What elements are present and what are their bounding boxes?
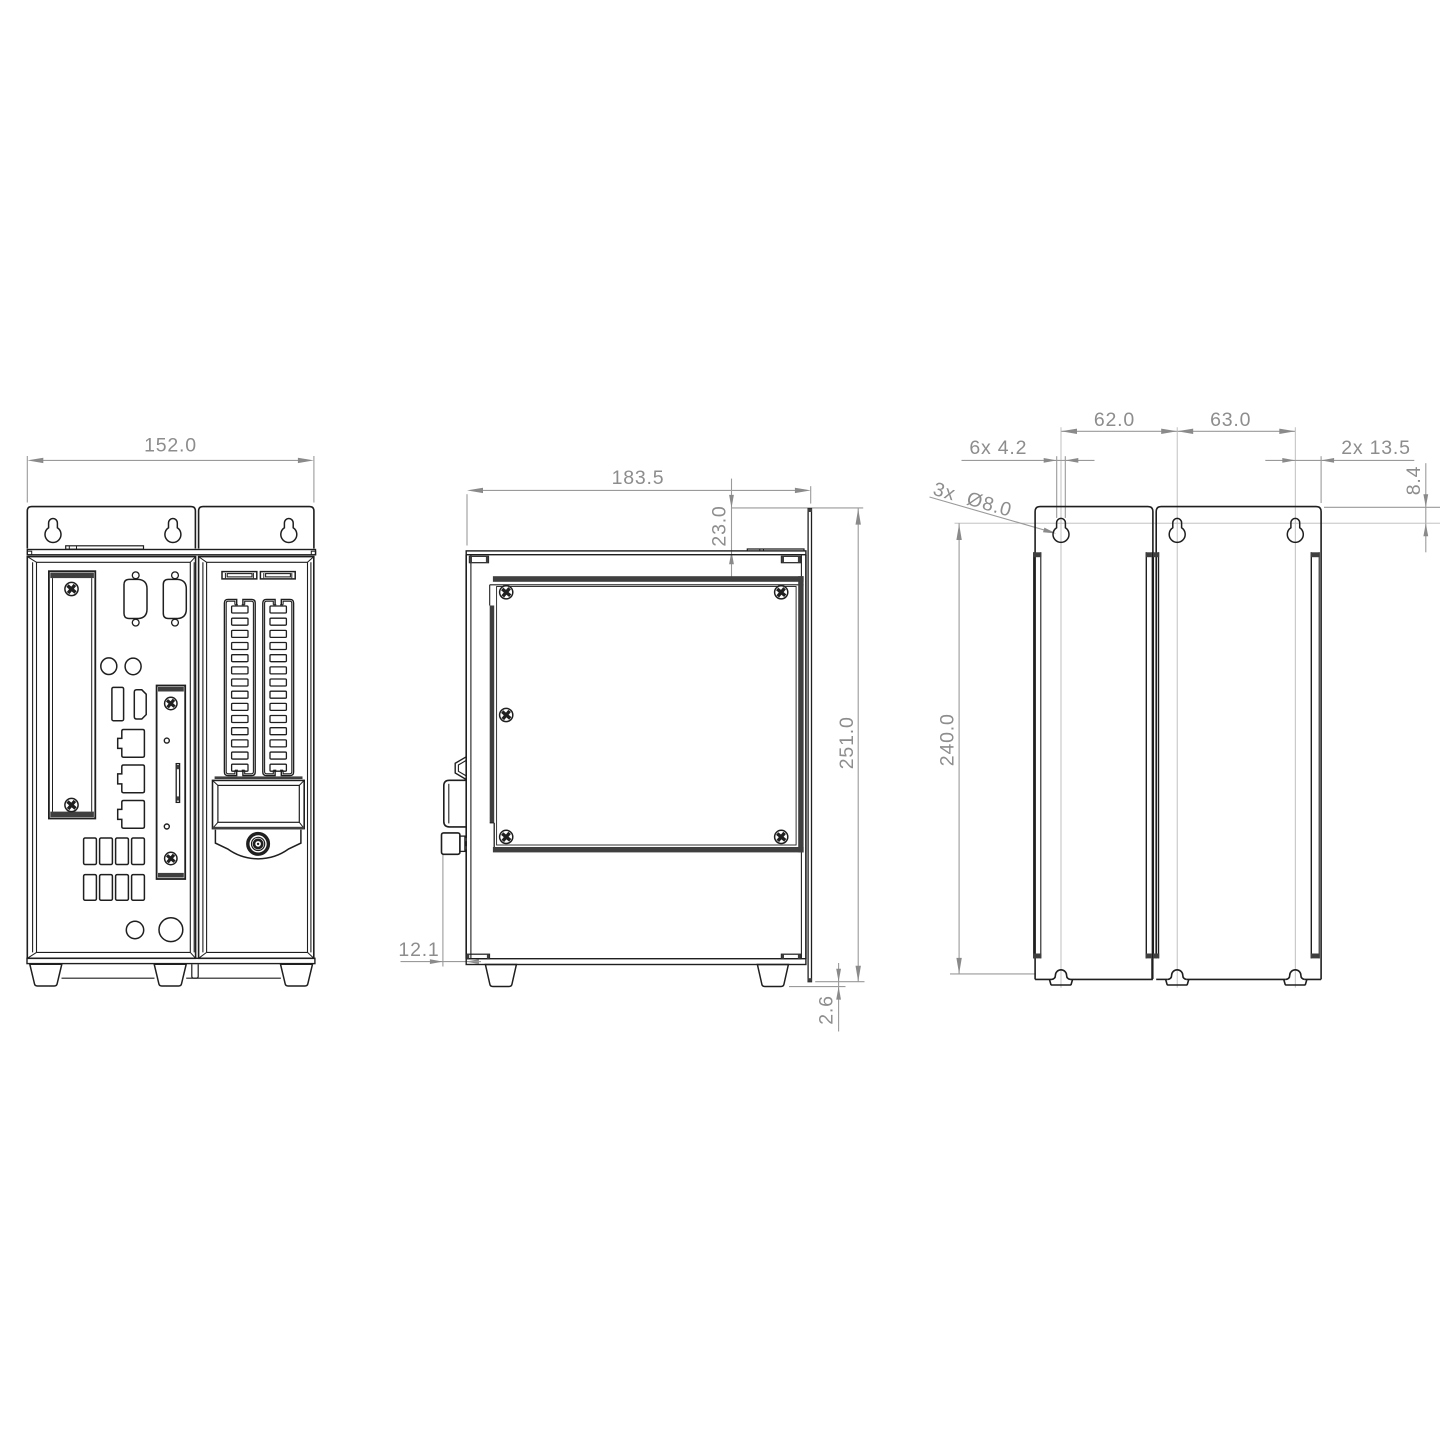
svg-text:23.0: 23.0 [709, 505, 731, 546]
svg-text:2.6: 2.6 [815, 995, 837, 1025]
svg-text:152.0: 152.0 [144, 435, 197, 457]
svg-text:8.4: 8.4 [1403, 466, 1425, 496]
svg-text:240.0: 240.0 [937, 713, 959, 766]
svg-text:183.5: 183.5 [612, 467, 665, 489]
svg-text:2x 13.5: 2x 13.5 [1341, 437, 1411, 459]
svg-text:12.1: 12.1 [398, 939, 439, 961]
svg-text:6x 4.2: 6x 4.2 [969, 437, 1027, 459]
svg-text:63.0: 63.0 [1210, 409, 1251, 431]
svg-text:251.0: 251.0 [836, 716, 858, 769]
svg-text:62.0: 62.0 [1094, 409, 1135, 431]
